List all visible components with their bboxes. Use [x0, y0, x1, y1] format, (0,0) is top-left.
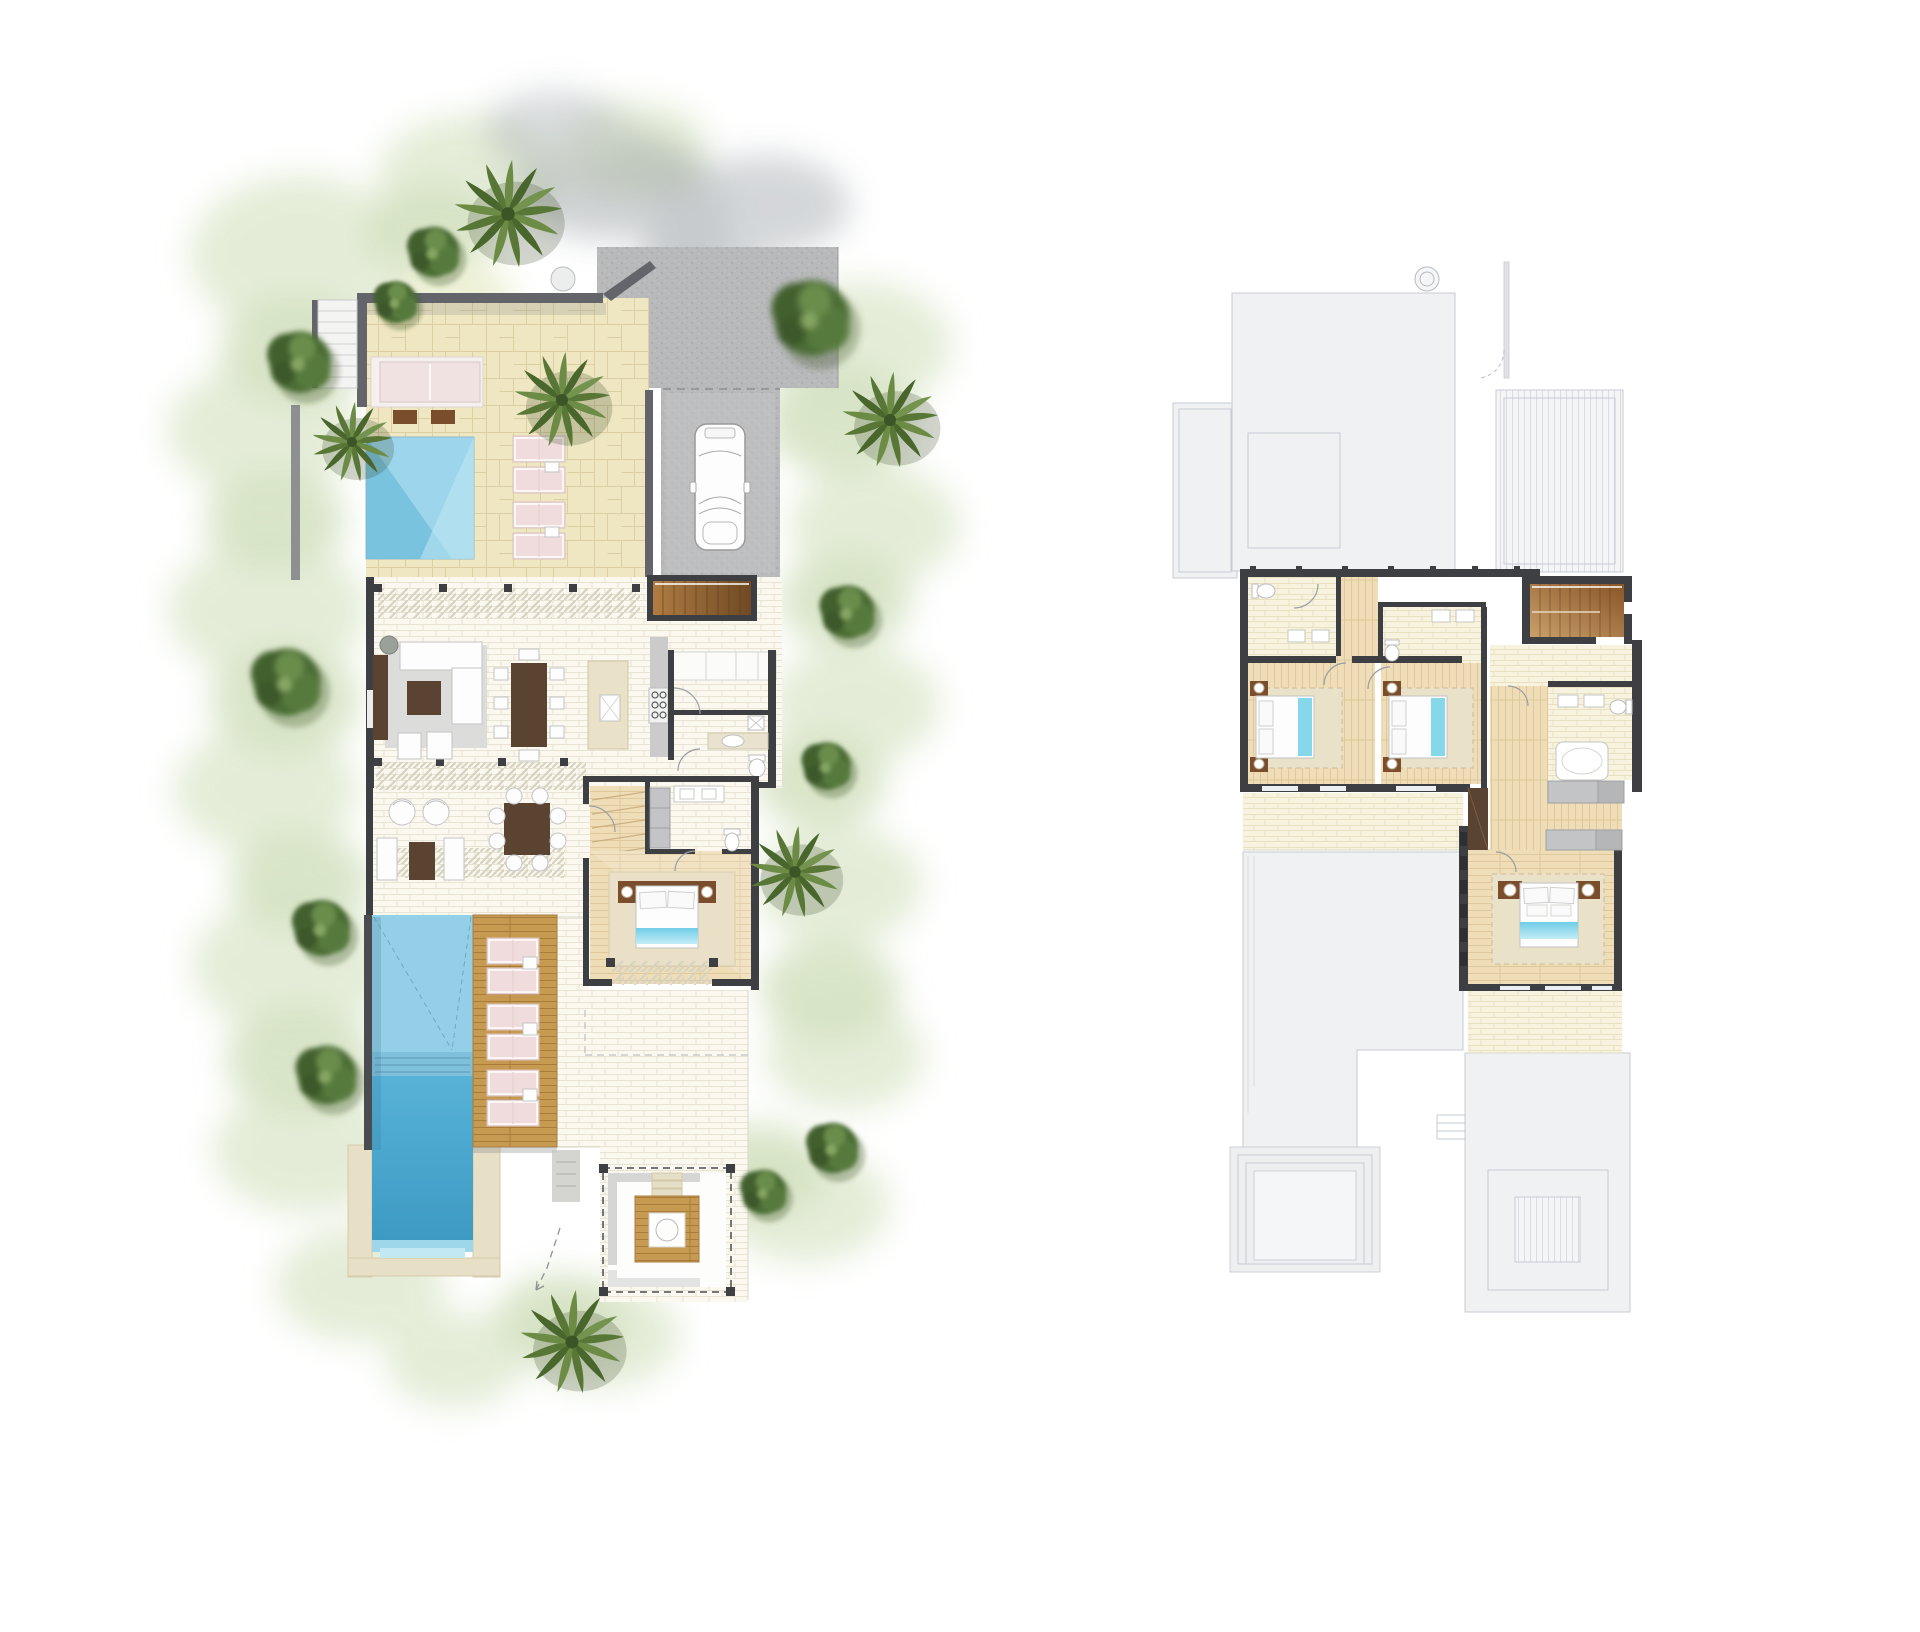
roof-vent	[1415, 267, 1439, 291]
dining-table	[511, 663, 547, 747]
terrace-north	[1243, 793, 1463, 850]
toilet	[1610, 700, 1626, 714]
stairwell	[1530, 584, 1624, 637]
bed-throw	[1520, 922, 1578, 939]
garden-ornament	[551, 267, 575, 291]
sofa	[400, 642, 482, 670]
master-suite-ground	[583, 776, 759, 990]
sideboard	[373, 655, 388, 740]
lap-pool-roof-outline	[1230, 1147, 1380, 1272]
round-table	[380, 636, 398, 654]
low-table	[409, 842, 435, 880]
upper-master-bedroom	[1492, 874, 1604, 964]
terrace-south	[1468, 991, 1622, 1053]
cabinets-fridge	[672, 652, 776, 680]
toilet	[749, 759, 765, 777]
ottoman	[398, 733, 421, 759]
bench	[444, 838, 464, 880]
side-table	[431, 410, 455, 424]
wardrobe	[650, 788, 670, 848]
garden-path	[536, 1150, 580, 1290]
plans-artwork	[0, 0, 1920, 1632]
fire-bowl	[656, 1219, 678, 1241]
toilet	[1257, 584, 1275, 598]
pavilion-roof	[1515, 1197, 1580, 1262]
ottoman	[427, 732, 452, 759]
upper-floor-plan	[1173, 262, 1642, 1312]
slatted-roof	[1496, 390, 1623, 572]
bedroom-sliding-door	[612, 961, 712, 985]
coffee-table	[407, 681, 441, 715]
side-table	[393, 410, 417, 424]
outdoor-table	[504, 803, 550, 855]
bed-throw	[1431, 698, 1445, 756]
bed-throw	[1298, 698, 1312, 756]
hall	[1336, 576, 1378, 663]
upper-bedroom-2	[1383, 681, 1473, 772]
ground-floor-plan	[167, 90, 960, 1408]
garden-pavilion	[599, 1164, 735, 1296]
toilet	[725, 833, 739, 851]
roof-steps	[1437, 1115, 1465, 1139]
wicker-chair	[423, 799, 449, 825]
interior-stair	[647, 575, 757, 621]
car	[690, 424, 750, 550]
toilet	[1385, 645, 1399, 661]
bed-throw	[636, 928, 698, 944]
wicker-chair	[389, 799, 415, 825]
sofa-chaise	[452, 668, 482, 724]
bench	[377, 838, 397, 880]
upper-bedroom-1	[1250, 681, 1342, 772]
pool-deck	[473, 915, 557, 1153]
floor-plan-rendering	[0, 0, 1920, 1632]
